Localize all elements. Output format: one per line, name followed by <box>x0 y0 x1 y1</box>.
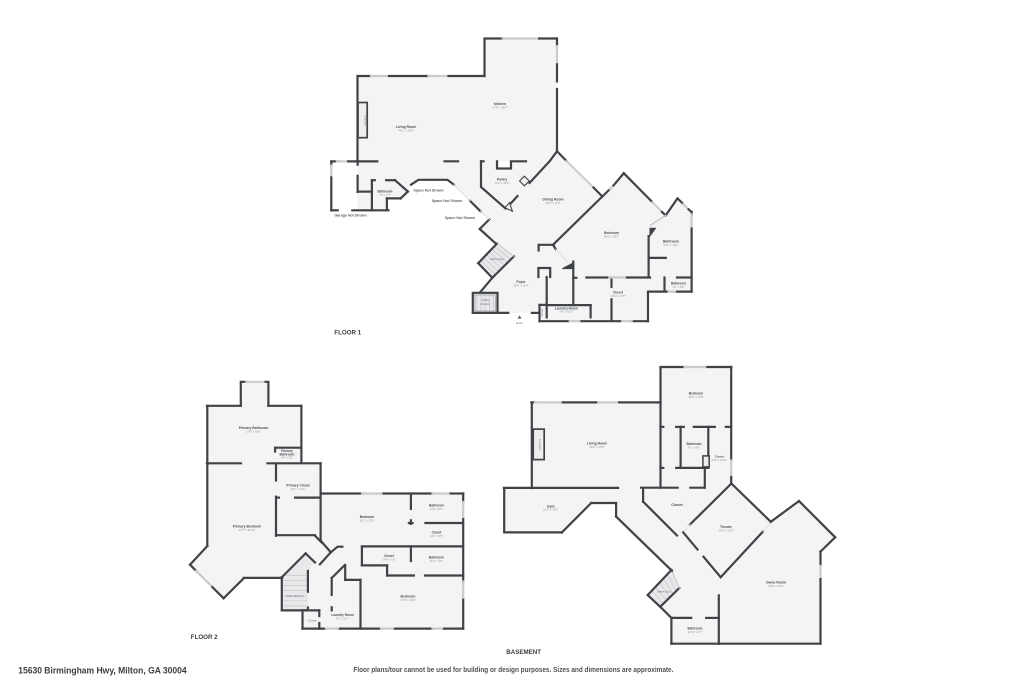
svg-text:Fireplace: Fireplace <box>363 115 367 127</box>
svg-text:Floor plans/tour cannot be use: Floor plans/tour cannot be used for buil… <box>353 665 673 674</box>
svg-text:11'6" x 8'9": 11'6" x 8'9" <box>430 507 443 511</box>
svg-text:Closet: Closet <box>671 503 683 507</box>
svg-text:15630 Birmingham Hwy, Milton,: 15630 Birmingham Hwy, Milton, GA 30004 <box>18 665 187 676</box>
svg-text:32'7" x 20'11": 32'7" x 20'11" <box>239 528 256 532</box>
svg-text:Closet: Closet <box>308 619 316 623</box>
svg-text:(Down): (Down) <box>481 302 490 306</box>
svg-text:FLOOR 1: FLOOR 1 <box>334 330 361 337</box>
svg-text:5'8" x 5'5": 5'8" x 5'5" <box>281 456 293 460</box>
svg-text:10'11" x 4'7": 10'11" x 4'7" <box>688 630 703 634</box>
svg-text:FLOOR 2: FLOOR 2 <box>191 634 218 641</box>
svg-text:26'1" x 20'3": 26'1" x 20'3" <box>604 234 619 238</box>
svg-text:5'8" x 9'10": 5'8" x 9'10" <box>560 310 574 314</box>
svg-text:15'6" x 16'4": 15'6" x 16'4" <box>513 283 528 287</box>
svg-text:16'1" x 12'0": 16'1" x 12'0" <box>359 518 374 522</box>
svg-text:Stairs (Down): Stairs (Down) <box>286 594 304 598</box>
svg-text:4'2" x 5'8": 4'2" x 5'8" <box>673 285 685 289</box>
svg-text:14'8" x 5'5": 14'8" x 5'5" <box>382 557 395 561</box>
svg-text:9'1" x 9'9": 9'1" x 9'9" <box>688 445 700 449</box>
svg-text:13'6" x 13'6": 13'6" x 13'6" <box>718 528 733 532</box>
svg-text:17'8" x 38'7": 17'8" x 38'7" <box>492 105 507 109</box>
svg-text:46'1" x 19'6": 46'1" x 19'6" <box>398 128 413 132</box>
svg-text:Fireplace: Fireplace <box>538 439 542 451</box>
svg-text:28'6" x 15'9": 28'6" x 15'9" <box>589 445 604 449</box>
svg-text:4'10" x 12'11": 4'10" x 12'11" <box>712 458 728 462</box>
svg-text:16'5" x 13'8": 16'5" x 13'8" <box>688 395 703 399</box>
svg-text:17'8" x 18'6": 17'8" x 18'6" <box>246 429 261 433</box>
svg-text:5'6" x 11'7": 5'6" x 11'7" <box>336 616 349 620</box>
svg-text:BASEMENT: BASEMENT <box>506 649 541 656</box>
svg-text:Entry: Entry <box>516 321 524 325</box>
svg-text:Stairs (Up): Stairs (Up) <box>657 590 671 594</box>
svg-text:11'6" x 5'5": 11'6" x 5'5" <box>430 559 443 563</box>
svg-text:10'4" x 20'2": 10'4" x 20'2" <box>494 181 509 185</box>
svg-text:Garage Not Shown: Garage Not Shown <box>335 214 367 218</box>
svg-text:26'8" x 24'5": 26'8" x 24'5" <box>768 584 783 588</box>
svg-text:7'6" x 6'7": 7'6" x 6'7" <box>379 193 391 197</box>
svg-text:9'10" x 16'1": 9'10" x 16'1" <box>663 243 678 247</box>
svg-text:Bathroom: Bathroom <box>279 452 294 456</box>
svg-text:Stairs (Up): Stairs (Up) <box>490 257 504 261</box>
svg-text:10'11" x 6'8": 10'11" x 6'8" <box>610 294 625 298</box>
svg-text:15'6" x 16'1": 15'6" x 16'1" <box>543 508 558 512</box>
svg-text:27'0" x 14'0": 27'0" x 14'0" <box>400 598 415 602</box>
svg-text:11'6" x 5'5": 11'6" x 5'5" <box>430 534 443 538</box>
svg-text:16'1" x 10'1": 16'1" x 10'1" <box>290 487 305 491</box>
svg-text:Closet: Closet <box>540 308 544 316</box>
svg-text:Space Not Shown: Space Not Shown <box>445 216 475 220</box>
svg-text:14'1" x 17'0": 14'1" x 17'0" <box>545 201 560 205</box>
svg-text:Space Not Shown: Space Not Shown <box>432 199 462 203</box>
svg-text:Space Not Shown: Space Not Shown <box>413 188 443 192</box>
